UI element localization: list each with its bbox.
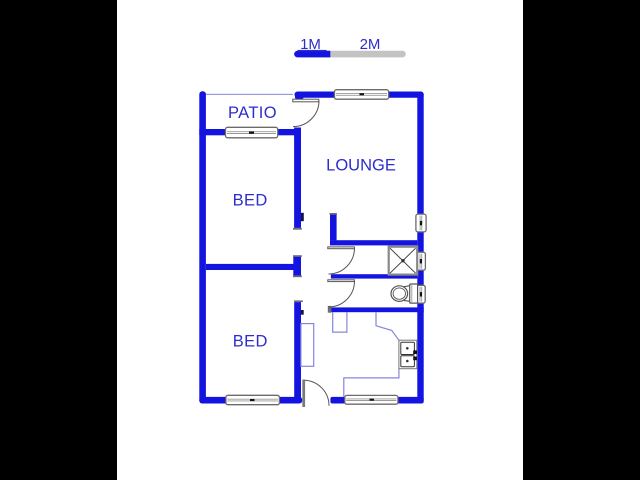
svg-text:PATIO: PATIO: [228, 104, 277, 122]
svg-text:2M: 2M: [360, 36, 381, 53]
svg-text:BED: BED: [233, 332, 268, 350]
svg-text:LOUNGE: LOUNGE: [326, 156, 396, 174]
svg-text:BED: BED: [233, 191, 268, 209]
